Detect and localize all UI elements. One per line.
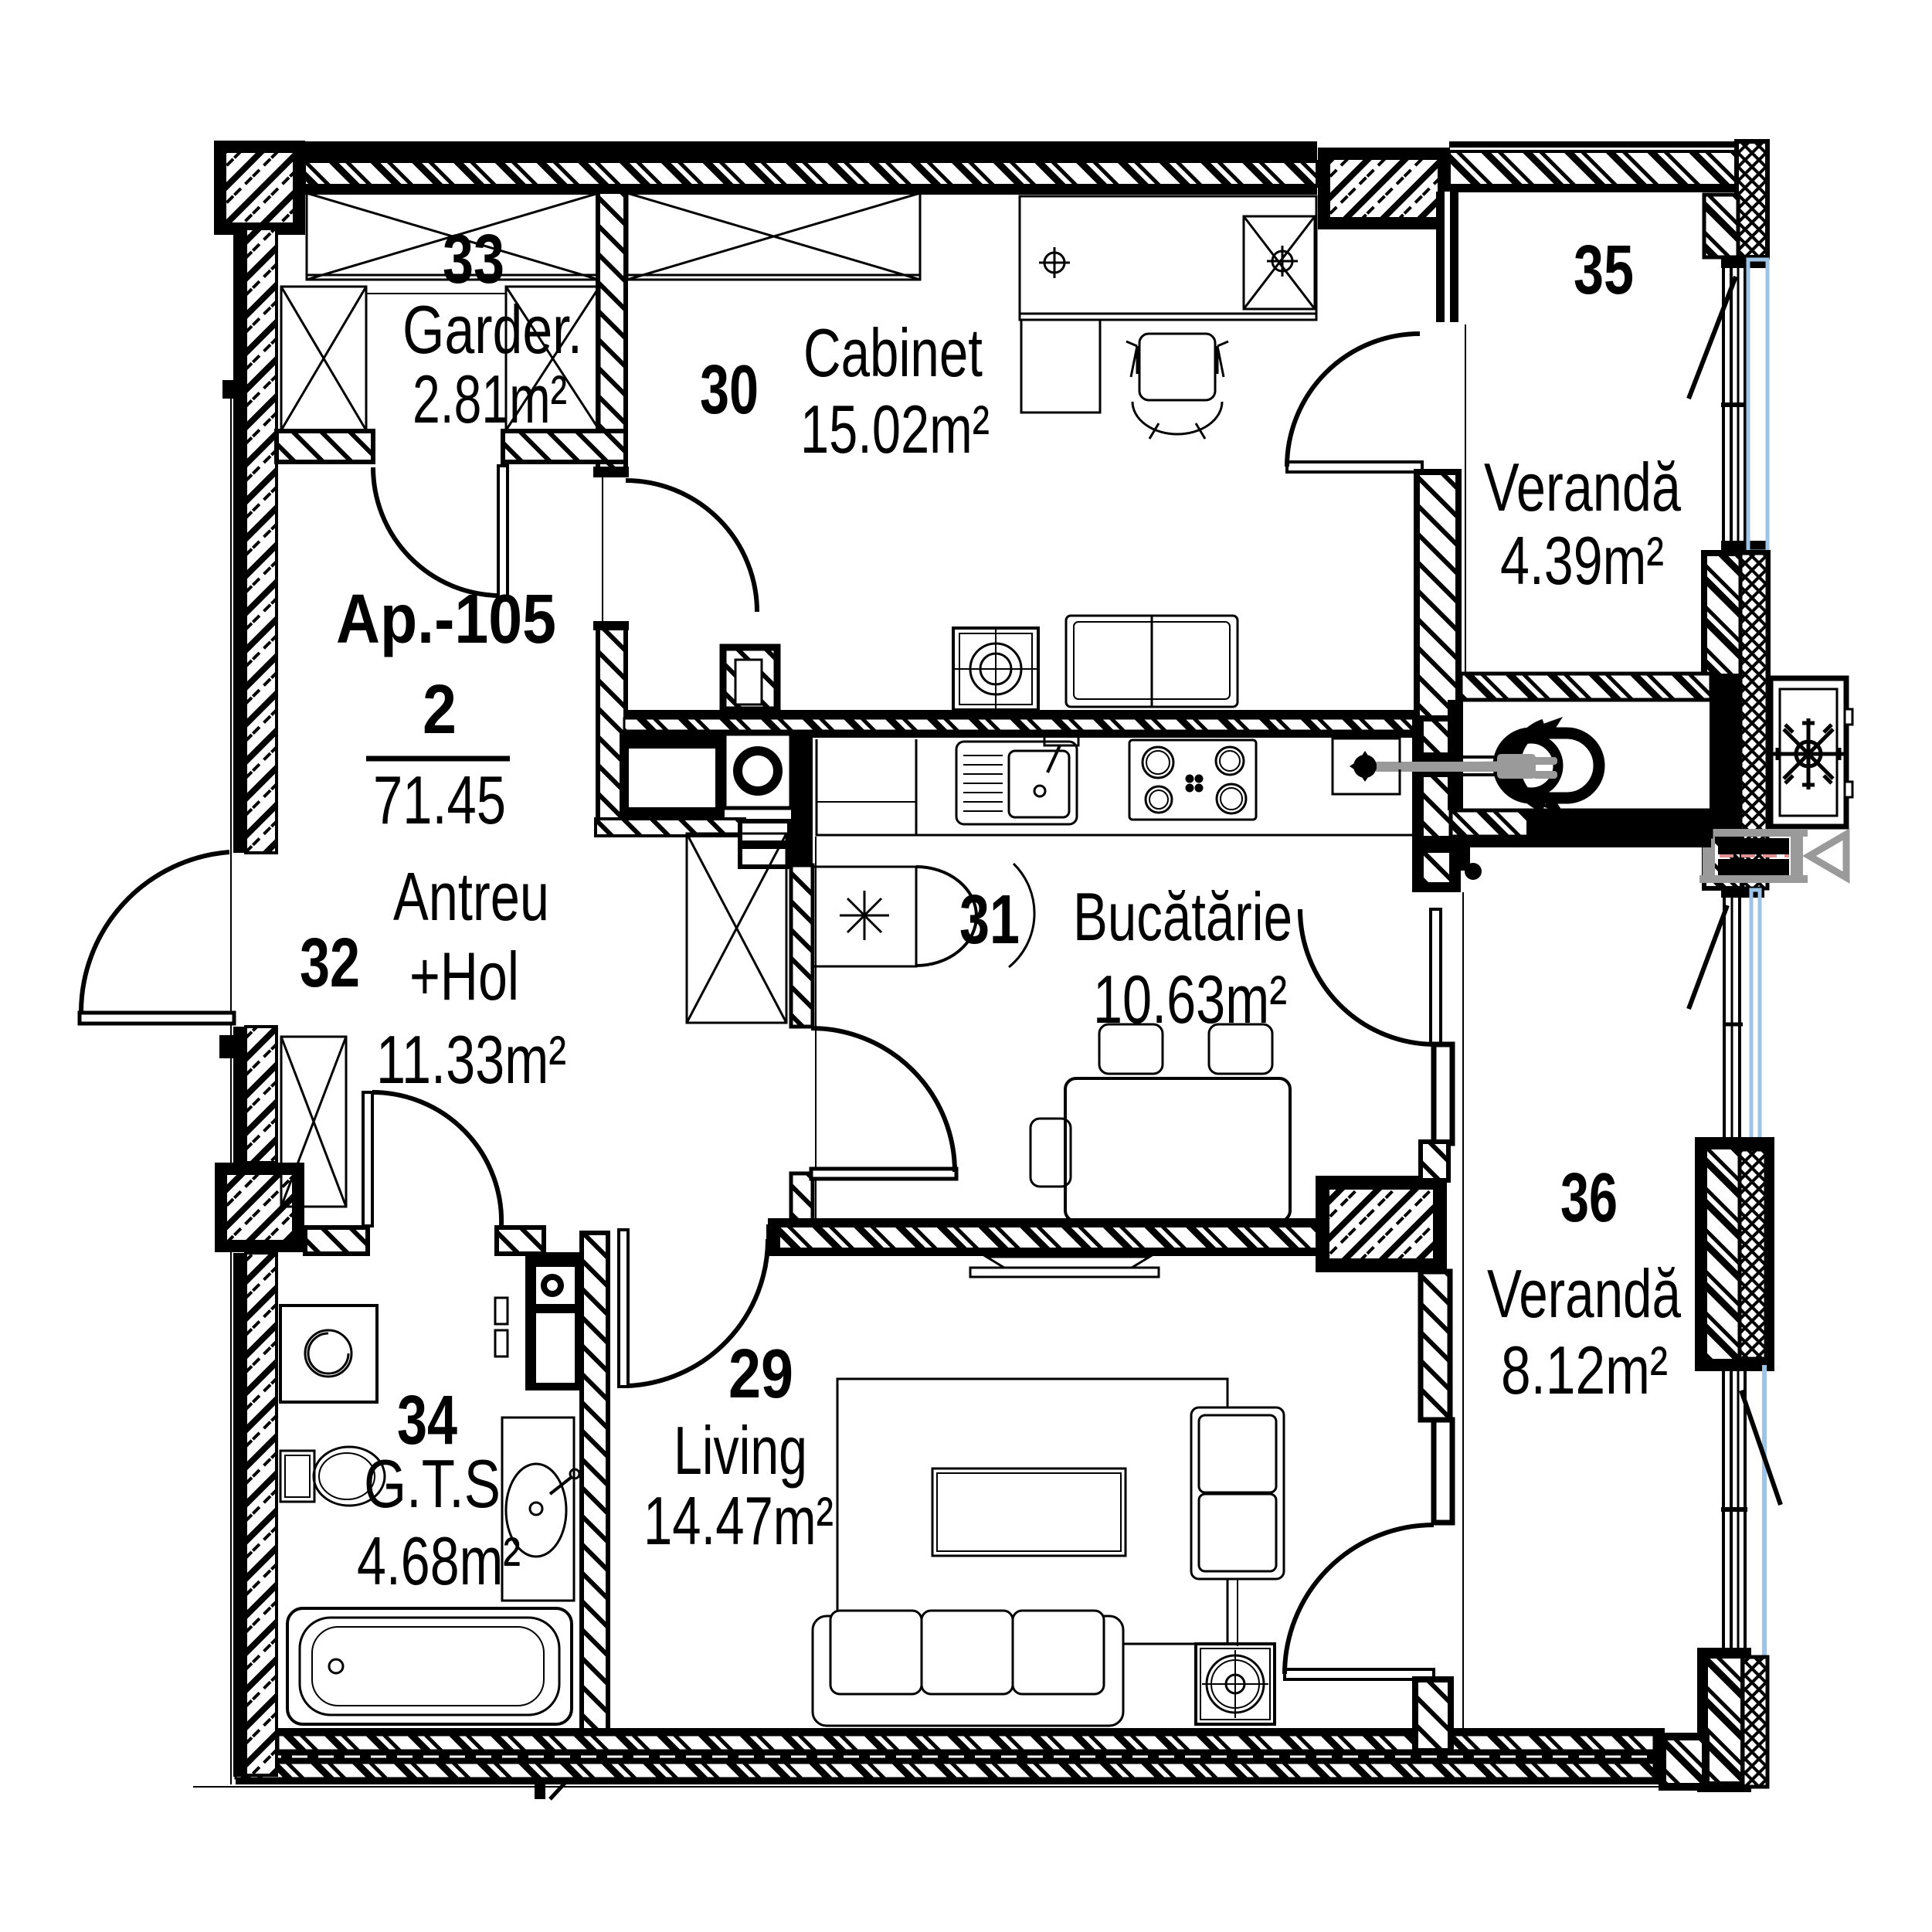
svg-text:Ap.-105: Ap.-105 <box>336 581 556 658</box>
svg-text:29: 29 <box>728 1336 793 1413</box>
svg-text:8.12m²: 8.12m² <box>1501 1332 1668 1408</box>
svg-text:71.45: 71.45 <box>373 762 506 838</box>
svg-text:10.63m²: 10.63m² <box>1093 961 1287 1037</box>
svg-text:Living: Living <box>674 1412 807 1489</box>
svg-text:Cabinet: Cabinet <box>803 314 983 391</box>
svg-text:+Hol: +Hol <box>409 938 519 1014</box>
svg-text:30: 30 <box>700 351 759 429</box>
svg-text:Verandă: Verandă <box>1484 449 1681 525</box>
svg-text:32: 32 <box>300 925 360 1002</box>
svg-text:15.02m²: 15.02m² <box>800 391 990 467</box>
svg-text:35: 35 <box>1574 232 1634 309</box>
svg-text:33: 33 <box>443 221 504 298</box>
svg-text:36: 36 <box>1560 1160 1618 1237</box>
svg-text:4.68m²: 4.68m² <box>357 1523 521 1599</box>
svg-text:2: 2 <box>423 671 457 749</box>
svg-text:14.47m²: 14.47m² <box>643 1482 834 1559</box>
svg-text:11.33m²: 11.33m² <box>376 1021 566 1098</box>
svg-text:Verandă: Verandă <box>1487 1255 1681 1332</box>
svg-text:Bucătărie: Bucătărie <box>1073 878 1292 955</box>
svg-text:Antreu: Antreu <box>393 858 549 935</box>
svg-text:4.39m²: 4.39m² <box>1500 522 1664 599</box>
